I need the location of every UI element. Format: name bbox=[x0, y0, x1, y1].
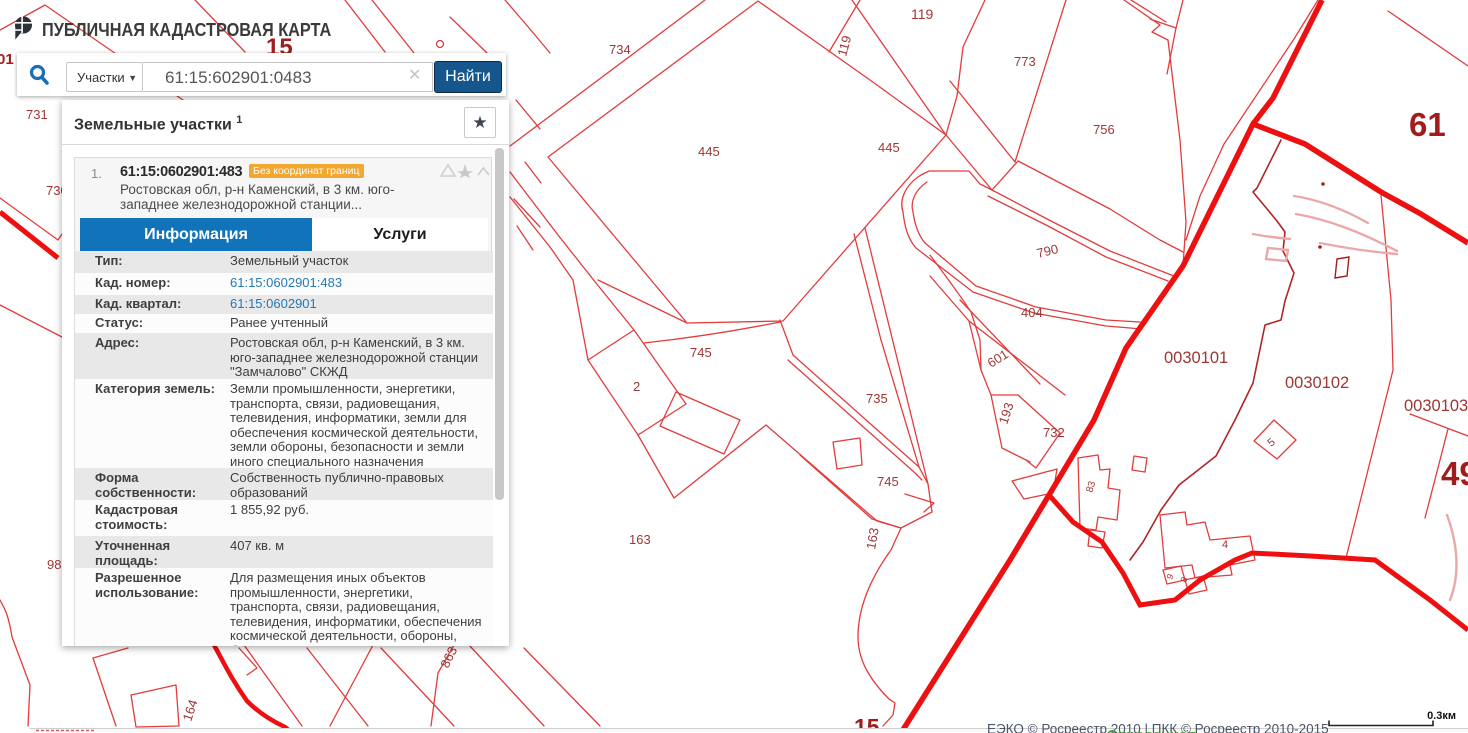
svg-text:863: 863 bbox=[437, 644, 460, 670]
svg-text:49: 49 bbox=[1441, 455, 1468, 492]
svg-text:Справочная: Справочная bbox=[1106, 727, 1196, 733]
svg-text:445: 445 bbox=[878, 140, 900, 155]
svg-text:735: 735 bbox=[866, 391, 888, 406]
svg-text:5: 5 bbox=[1265, 436, 1277, 449]
svg-text:0030101: 0030101 bbox=[1164, 349, 1228, 367]
svg-text:119: 119 bbox=[911, 6, 934, 22]
svg-text:83: 83 bbox=[1084, 480, 1098, 494]
svg-text:4: 4 bbox=[1222, 539, 1228, 551]
svg-text:193: 193 bbox=[996, 401, 1017, 426]
svg-text:163: 163 bbox=[863, 527, 882, 551]
svg-text:745: 745 bbox=[690, 345, 712, 360]
svg-text:98: 98 bbox=[47, 557, 61, 572]
svg-text:731: 731 bbox=[26, 107, 48, 122]
svg-text:773: 773 bbox=[1014, 54, 1036, 69]
svg-text:0030103: 0030103 bbox=[1404, 397, 1468, 415]
svg-text:745: 745 bbox=[877, 474, 899, 489]
svg-text:0.3км: 0.3км bbox=[1427, 710, 1456, 722]
svg-text:61: 61 bbox=[1409, 106, 1446, 143]
svg-text:164: 164 bbox=[180, 698, 201, 723]
svg-text:163: 163 bbox=[629, 532, 651, 547]
svg-text:01: 01 bbox=[0, 51, 14, 68]
svg-text:756: 756 bbox=[1093, 122, 1115, 137]
svg-text:734: 734 bbox=[609, 42, 631, 57]
svg-text:0030102: 0030102 bbox=[1285, 374, 1349, 392]
svg-text:2: 2 bbox=[633, 379, 640, 394]
svg-text:445: 445 bbox=[698, 144, 720, 159]
svg-text:732: 732 bbox=[1043, 425, 1065, 440]
svg-text:404: 404 bbox=[1021, 305, 1043, 320]
svg-text:790: 790 bbox=[1035, 241, 1060, 261]
